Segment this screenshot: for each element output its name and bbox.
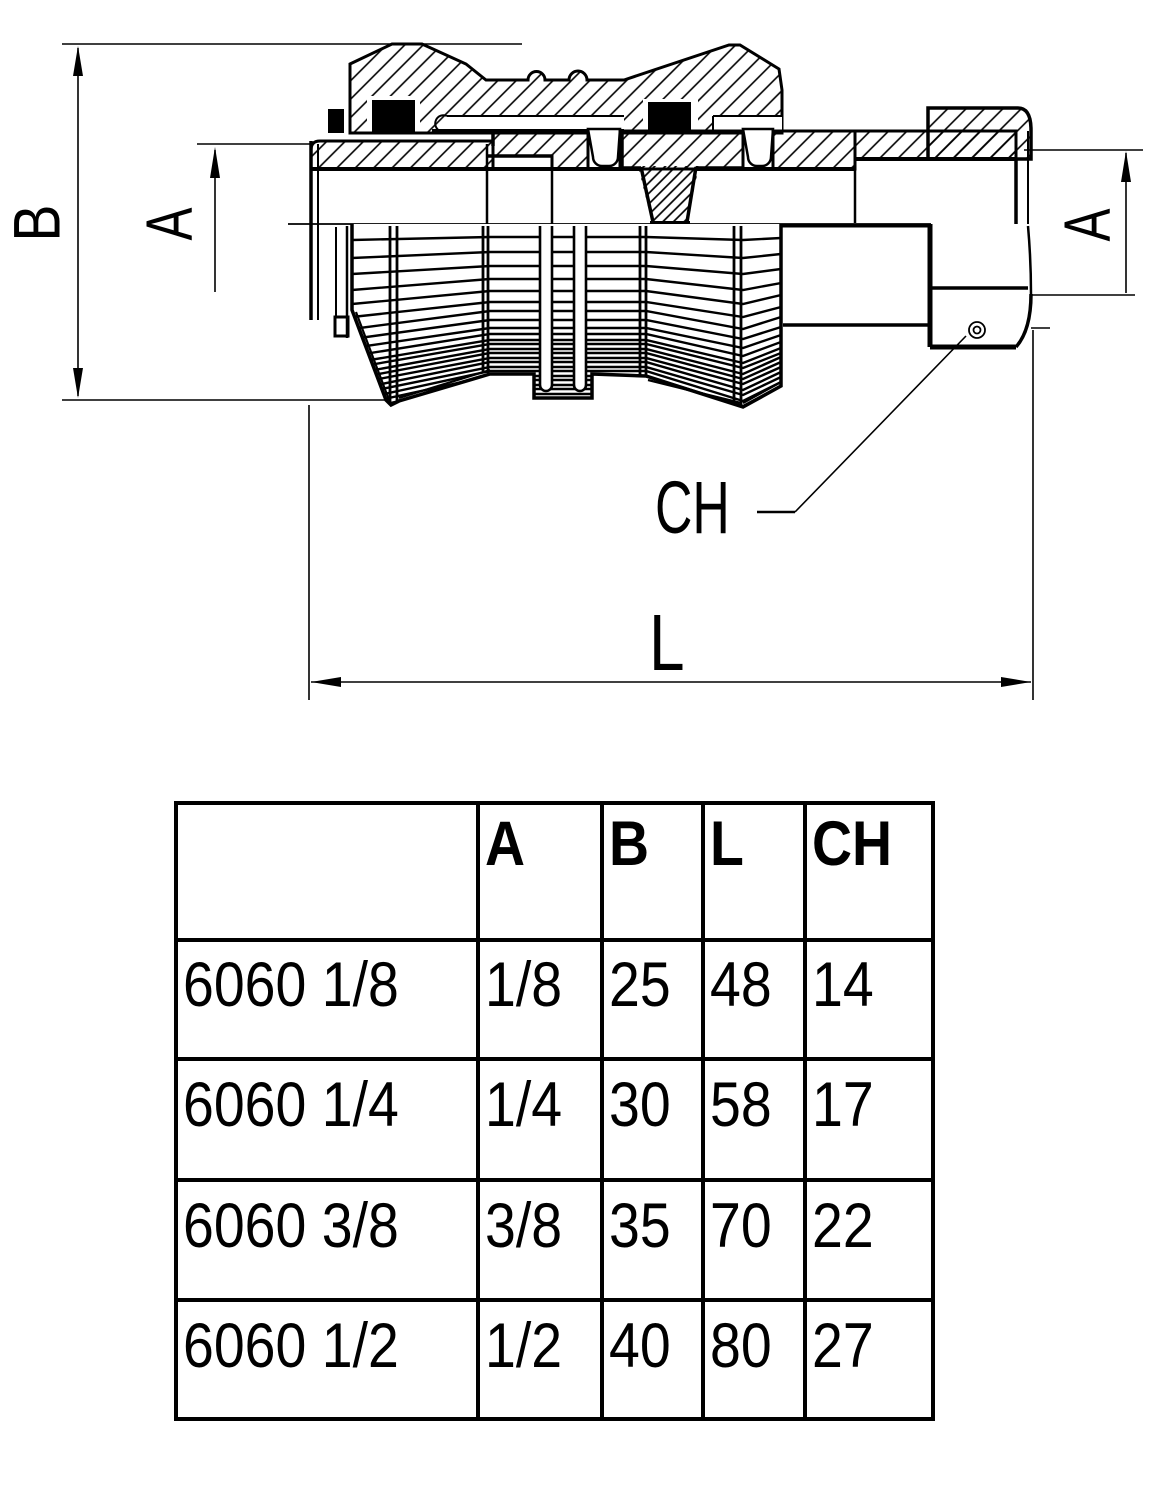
svg-text:B: B <box>0 205 74 242</box>
svg-text:A: A <box>1051 208 1125 241</box>
svg-text:CH: CH <box>655 466 730 549</box>
svg-text:L: L <box>649 598 685 687</box>
svg-text:A: A <box>133 207 207 240</box>
